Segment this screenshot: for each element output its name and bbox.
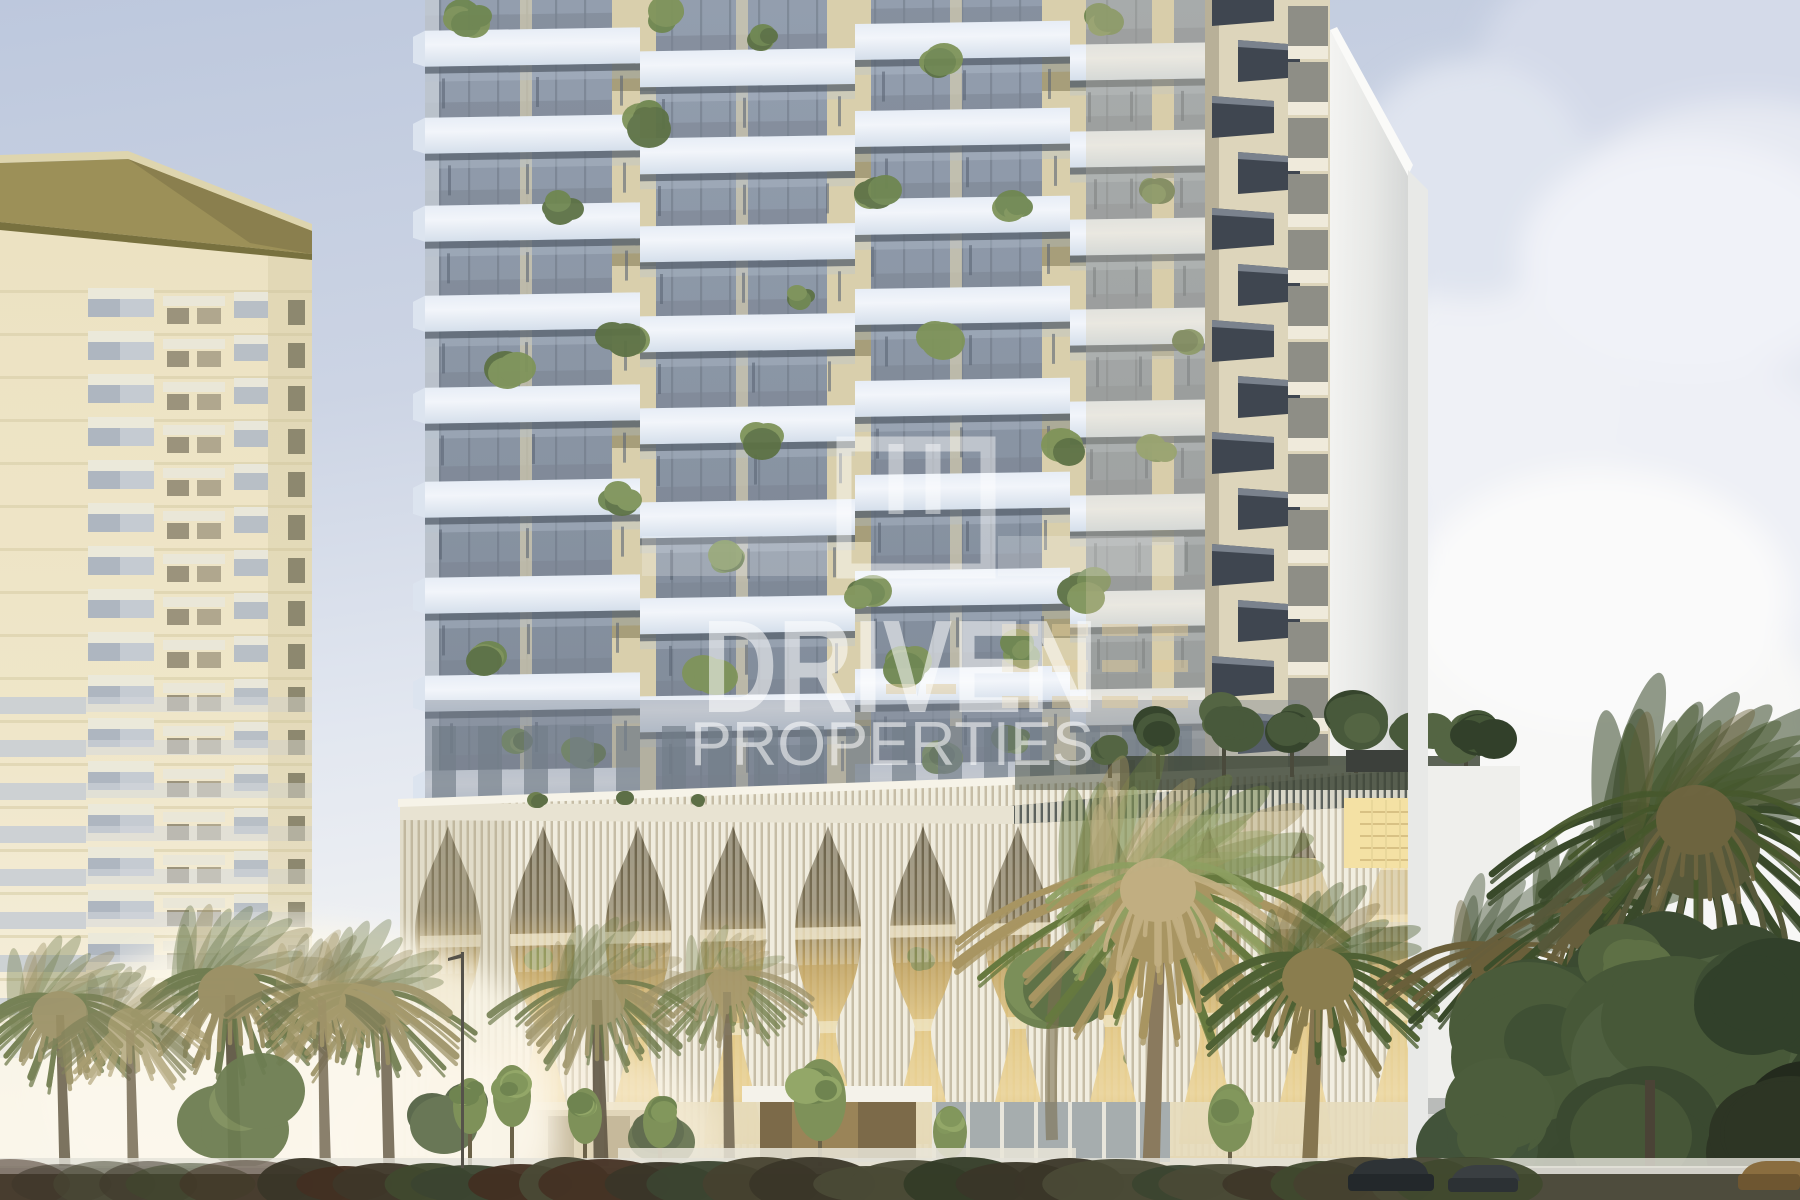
svg-text:PROPERTIES: PROPERTIES	[690, 710, 1094, 779]
